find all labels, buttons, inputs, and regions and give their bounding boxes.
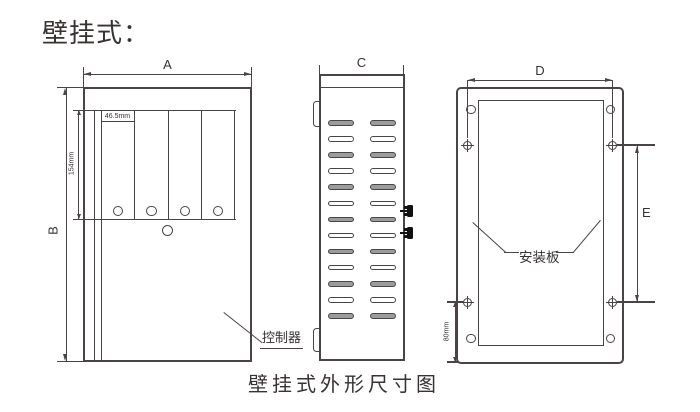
corner-hole — [466, 334, 476, 344]
arrowhead — [468, 78, 475, 82]
corner-hole — [606, 105, 616, 115]
dimension-drawing: 壁挂式： 46.5mm 154mm A — [0, 0, 700, 412]
dim-E-line — [637, 145, 638, 302]
mounting-plate-callout: 安装板 — [519, 246, 560, 266]
dim-D-ext-left — [467, 80, 468, 138]
back-view: D E 80mm 安装板 — [0, 0, 700, 412]
screw-hole — [608, 298, 617, 307]
plate-leader-left-stub — [504, 252, 519, 253]
arrowhead — [635, 146, 639, 153]
dim-D-line — [468, 80, 613, 81]
mounting-plate-outline — [478, 100, 604, 346]
arrowhead — [453, 302, 457, 307]
dim-80-line — [455, 302, 456, 362]
screw-hole — [463, 141, 472, 150]
dim-D-label: D — [468, 64, 613, 77]
drawing-caption: 壁挂式外形尺寸图 — [248, 368, 440, 397]
arrowhead — [453, 357, 457, 362]
screw-hole — [608, 141, 617, 150]
bottom-offset-label: 80mm — [444, 319, 451, 345]
screw-hole — [463, 298, 472, 307]
dim-D-ext-right — [612, 80, 613, 138]
dim-E-label: E — [642, 206, 651, 219]
arrowhead — [605, 78, 612, 82]
arrowhead — [635, 295, 639, 302]
